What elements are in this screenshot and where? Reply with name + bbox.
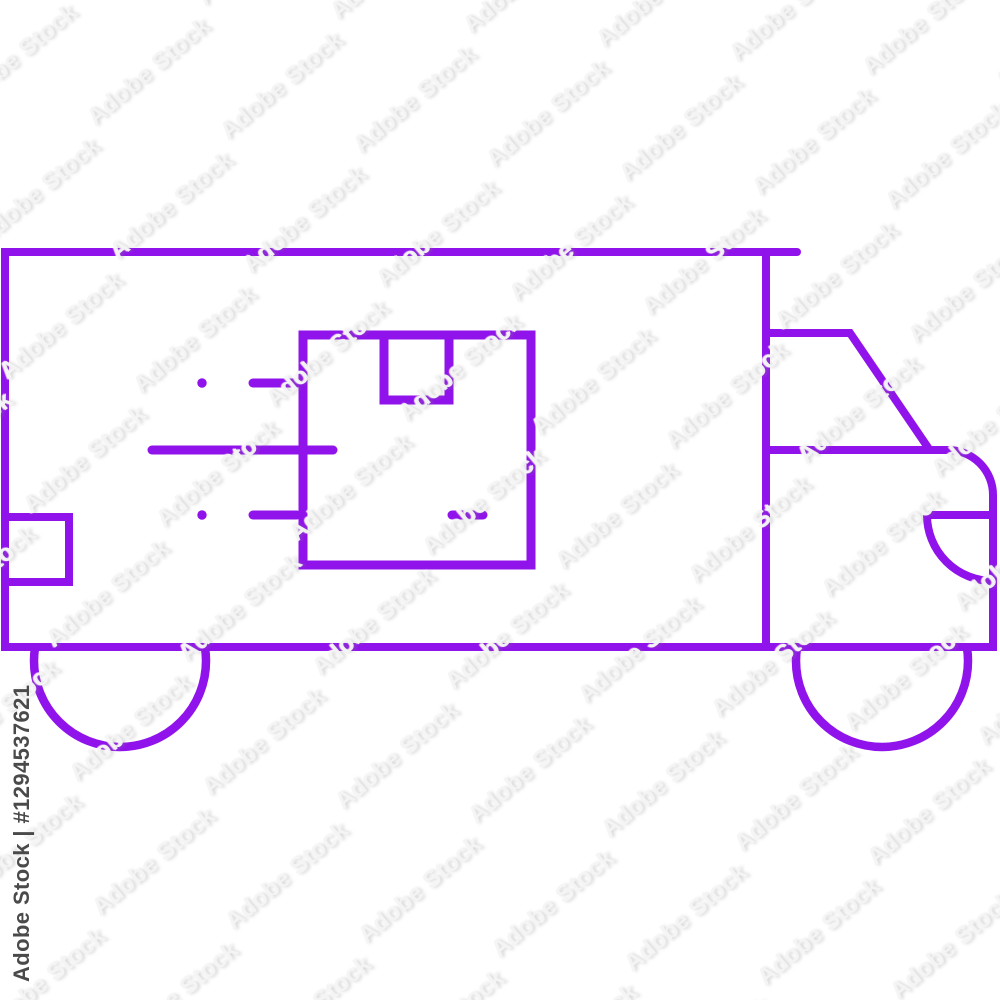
stock-image-preview: Adobe StockAdobe StockAdobe StockAdobe S… [0, 0, 1000, 1000]
speed-dot-top [197, 378, 206, 387]
rear-step [5, 517, 69, 582]
cab-roof-windshield-line [766, 333, 929, 449]
delivery-truck-icon [0, 0, 1000, 1000]
speed-dot-bottom [197, 510, 206, 519]
stock-id-text: Adobe Stock | #1294537621 [9, 685, 35, 982]
